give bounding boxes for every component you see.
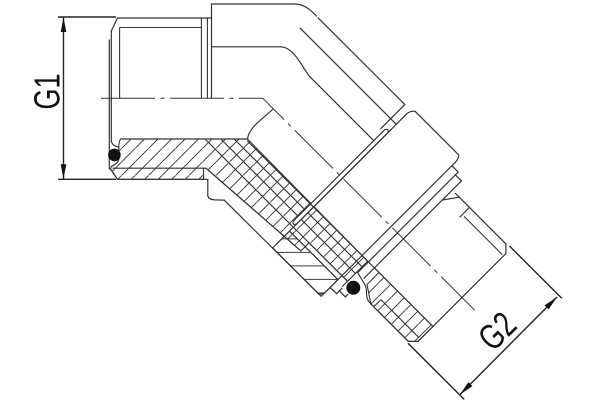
svg-text:G1: G1 bbox=[27, 74, 68, 110]
